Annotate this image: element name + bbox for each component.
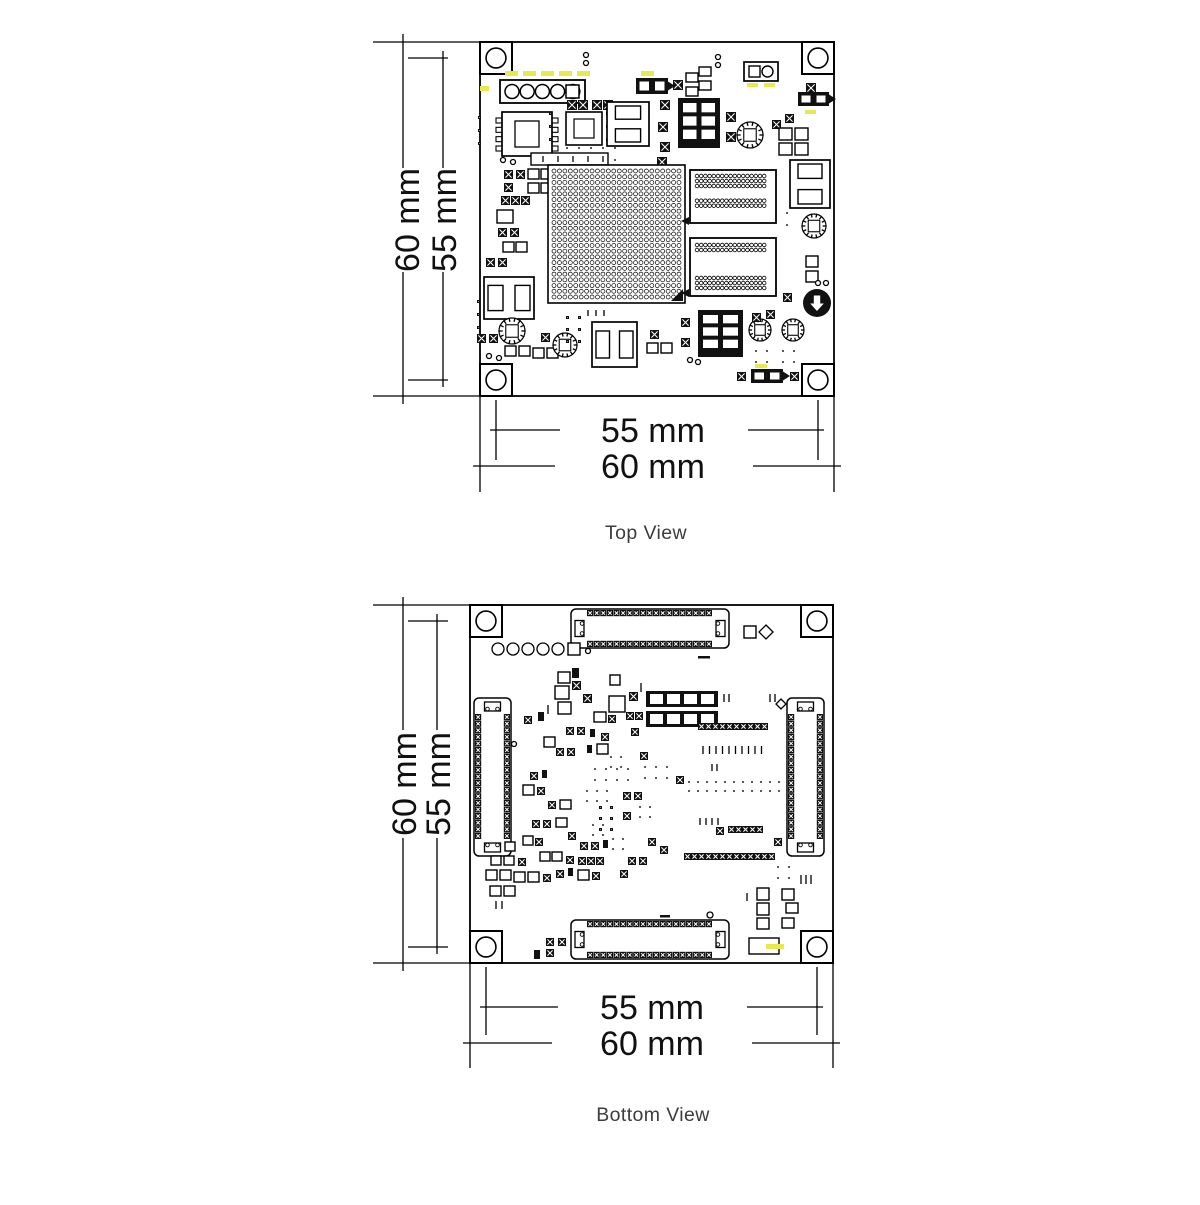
smd-component xyxy=(603,840,608,848)
smd-component xyxy=(534,950,540,959)
smd-pad xyxy=(774,838,782,846)
smd-pad xyxy=(477,334,486,343)
highlight-mark xyxy=(480,86,489,91)
via xyxy=(512,742,517,747)
smd-pad xyxy=(660,100,670,110)
smd-pad xyxy=(548,801,556,809)
smd-component xyxy=(806,271,818,282)
smd-pad xyxy=(546,949,554,957)
pad-array xyxy=(646,691,718,707)
smd-component xyxy=(538,712,544,721)
board-connector xyxy=(571,920,729,959)
smd-component xyxy=(497,210,513,223)
via xyxy=(696,360,701,365)
connector-footprint xyxy=(690,170,776,223)
highlight-mark xyxy=(541,71,554,76)
smd-pad xyxy=(486,258,495,267)
smd-component xyxy=(528,872,539,882)
smd-component xyxy=(556,818,567,827)
smd-pad xyxy=(498,258,507,267)
smd-component xyxy=(544,737,555,747)
via xyxy=(584,53,589,58)
smd-pad xyxy=(568,832,576,840)
smd-pad xyxy=(530,772,538,780)
smd-pad xyxy=(620,870,628,878)
highlight-mark xyxy=(747,83,758,87)
smd-pad-array xyxy=(698,723,768,730)
smd-pad xyxy=(518,858,526,866)
bottom-board-outline xyxy=(470,605,833,963)
smd-pad-array xyxy=(684,853,775,860)
highlight-mark xyxy=(764,83,775,87)
smd-pad xyxy=(556,870,564,878)
via xyxy=(586,649,591,654)
mounting-hole xyxy=(470,605,502,637)
smd-pad xyxy=(608,715,616,723)
qfn-chip xyxy=(566,112,602,145)
via xyxy=(716,63,721,68)
smd-component xyxy=(486,870,497,880)
smd-pad xyxy=(783,293,792,302)
bottom-view: 60 mm 55 mm 55 mm 60 mm Bottom View xyxy=(373,597,840,1126)
two-pad-component xyxy=(790,160,830,208)
bottom-dim-width-inner: 55 mm xyxy=(600,989,704,1027)
via xyxy=(501,158,506,163)
pin-header xyxy=(500,80,585,103)
smd-pad xyxy=(629,692,638,701)
mounting-hole xyxy=(802,42,834,74)
via xyxy=(487,354,492,359)
board-connector xyxy=(571,609,729,648)
smd-component xyxy=(491,856,501,865)
smd-component xyxy=(757,918,769,929)
smd-component xyxy=(795,128,808,140)
mounting-hole xyxy=(801,931,833,963)
smd-pad xyxy=(673,80,683,90)
smd-component xyxy=(594,712,606,722)
smd-pad xyxy=(504,170,513,179)
smd-pad xyxy=(676,776,684,784)
smd-pad xyxy=(532,820,540,828)
smd-pad xyxy=(806,83,816,93)
two-pad-component xyxy=(592,322,637,367)
smd-pad xyxy=(634,792,642,800)
smd-component xyxy=(661,343,672,353)
smd-component xyxy=(505,346,516,356)
smd-component xyxy=(699,67,711,76)
inductor xyxy=(498,318,525,345)
mounting-hole xyxy=(480,42,512,74)
smd-component xyxy=(519,346,530,356)
two-pad-component xyxy=(484,277,534,319)
smd-component xyxy=(597,744,608,754)
smd-component xyxy=(516,242,527,252)
bottom-dim-height-inner: 55 mm xyxy=(420,732,458,836)
smd-component xyxy=(523,785,534,795)
smd-pad xyxy=(785,114,794,123)
smd-pad xyxy=(716,827,724,835)
inductor xyxy=(552,333,577,358)
smd-pad xyxy=(556,748,564,756)
smd-pad xyxy=(580,842,588,850)
inductor xyxy=(801,214,826,239)
smd-pad xyxy=(681,318,690,327)
smd-pad xyxy=(489,334,498,343)
via xyxy=(537,643,549,655)
via xyxy=(497,356,502,361)
bga-grid xyxy=(548,165,685,303)
highlight-mark xyxy=(755,364,767,368)
pcb-mechanical-drawing: 60 mm 55 mm 55 mm 60 mm Top View 60 mm 5… xyxy=(0,0,1200,1200)
smd-pad xyxy=(567,748,575,756)
smd-pad xyxy=(660,142,670,152)
smd-pad xyxy=(790,372,799,381)
smd-pad xyxy=(737,372,746,381)
via xyxy=(511,160,516,165)
smd-pad xyxy=(510,228,519,237)
smd-pad xyxy=(577,727,585,735)
smd-pad xyxy=(648,838,656,846)
smd-component xyxy=(500,870,511,880)
smd-component xyxy=(647,343,658,353)
smd-component xyxy=(552,852,562,861)
smd-component xyxy=(514,872,525,882)
via xyxy=(816,281,821,286)
two-pin-part xyxy=(744,62,778,81)
inductor xyxy=(736,122,763,149)
smd-component xyxy=(528,169,539,179)
smd-pad xyxy=(766,310,775,319)
smd-component xyxy=(523,836,533,845)
smd-component xyxy=(505,842,515,851)
smd-pad xyxy=(726,112,736,122)
smd-pad xyxy=(524,716,532,724)
smd-component xyxy=(533,348,544,358)
smd-component xyxy=(555,686,569,699)
smd-component xyxy=(698,656,710,659)
smd-pad xyxy=(631,728,639,736)
highlight-mark xyxy=(577,71,590,76)
smd-pad xyxy=(591,842,599,850)
via xyxy=(552,643,564,655)
smd-component xyxy=(610,675,620,685)
smd-component xyxy=(757,903,769,915)
highlight-mark xyxy=(641,71,654,76)
smd-pad-array xyxy=(578,857,604,865)
smd-pad xyxy=(623,812,631,820)
smd-component xyxy=(528,183,539,193)
connector-footprint xyxy=(690,238,776,296)
smd-component xyxy=(686,73,698,82)
via xyxy=(522,643,534,655)
smd-component xyxy=(757,888,769,900)
smd-component xyxy=(779,143,792,155)
mounting-hole xyxy=(470,931,502,963)
pcb-dimension-drawing-page: 60 mm 55 mm 55 mm 60 mm Top View 60 mm 5… xyxy=(0,0,1200,1200)
smd-pad xyxy=(516,170,525,179)
smd-component xyxy=(504,856,514,865)
smd-pad xyxy=(592,872,600,880)
smd-pad xyxy=(572,681,581,690)
smd-component xyxy=(699,81,711,90)
six-pad-component xyxy=(698,310,743,357)
smd-pad xyxy=(639,857,647,865)
smd-component xyxy=(560,800,571,809)
inductor xyxy=(748,319,771,342)
smd-component xyxy=(782,889,794,900)
smd-component xyxy=(660,915,670,918)
smd-pad xyxy=(726,132,736,142)
mounting-hole xyxy=(802,364,834,396)
two-pad-component xyxy=(607,102,649,146)
smd-pad xyxy=(752,313,761,322)
smd-component xyxy=(590,729,595,737)
smd-component xyxy=(779,128,792,140)
smd-pad xyxy=(537,787,545,795)
highlight-mark xyxy=(766,944,784,949)
highlight-mark xyxy=(559,71,572,76)
smd-pad xyxy=(628,857,636,865)
via xyxy=(688,358,693,363)
soic-chip xyxy=(496,112,558,156)
smd-component xyxy=(806,256,818,267)
via xyxy=(707,912,713,918)
bottom-dim-height-outer: 60 mm xyxy=(386,732,424,836)
smd-pad-array xyxy=(728,826,763,833)
smd-pad xyxy=(504,183,513,192)
smd-pad xyxy=(650,330,659,339)
smd-pad xyxy=(543,874,551,882)
board-connector xyxy=(787,698,824,856)
bottom-view-caption: Bottom View xyxy=(596,1104,710,1126)
smd-pad xyxy=(660,846,668,854)
smd-pad xyxy=(583,694,592,703)
smd-component xyxy=(782,918,794,928)
top-view-caption: Top View xyxy=(605,522,687,544)
smd-pad xyxy=(498,228,507,237)
smd-pad xyxy=(681,338,690,347)
board-connector xyxy=(474,698,511,856)
smd-pad xyxy=(558,938,566,946)
smd-pad xyxy=(541,333,550,342)
smd-component xyxy=(558,672,570,683)
smd-pad xyxy=(543,820,551,828)
smd-pad xyxy=(658,122,668,132)
smd-component xyxy=(568,643,580,655)
smd-component xyxy=(572,668,579,678)
via xyxy=(492,643,504,655)
top-dim-height-outer: 60 mm xyxy=(389,168,427,272)
smd-pad xyxy=(601,733,609,741)
smd-component xyxy=(744,626,756,638)
smd-component xyxy=(786,903,798,913)
six-pad-component xyxy=(678,98,720,148)
smd-component xyxy=(490,886,501,896)
smd-pad xyxy=(623,792,631,800)
smd-pad xyxy=(535,838,543,846)
smd-component xyxy=(578,870,589,880)
smd-component xyxy=(542,770,547,778)
smd-component xyxy=(540,852,550,861)
smd-pad xyxy=(566,727,574,735)
top-dim-height-inner: 55 mm xyxy=(426,168,464,272)
smd-component xyxy=(609,696,625,712)
bottom-dim-width-outer: 60 mm xyxy=(600,1025,704,1063)
highlight-mark xyxy=(523,71,536,76)
mounting-hole xyxy=(801,605,833,637)
smd-pad xyxy=(546,938,554,946)
top-dim-width-inner: 55 mm xyxy=(601,412,705,450)
smd-component xyxy=(587,745,592,753)
smd-pad-array xyxy=(501,196,530,205)
download-arrow-icon xyxy=(803,289,831,317)
smd-component xyxy=(568,868,573,876)
smd-pad xyxy=(640,752,648,760)
smd-component xyxy=(558,702,571,714)
via xyxy=(507,643,519,655)
smd-component xyxy=(503,242,514,252)
via xyxy=(824,281,829,286)
smd-component xyxy=(686,87,698,96)
highlight-mark xyxy=(505,71,518,76)
top-view: 60 mm 55 mm 55 mm 60 mm Top View xyxy=(373,34,841,544)
highlight-mark xyxy=(805,110,816,114)
smd-component xyxy=(504,886,515,896)
smd-component xyxy=(795,143,808,155)
inductor xyxy=(781,319,804,342)
via xyxy=(716,55,721,60)
via xyxy=(584,61,589,66)
mounting-hole xyxy=(480,364,512,396)
top-dim-width-outer: 60 mm xyxy=(601,448,705,486)
smd-pad xyxy=(566,856,574,864)
